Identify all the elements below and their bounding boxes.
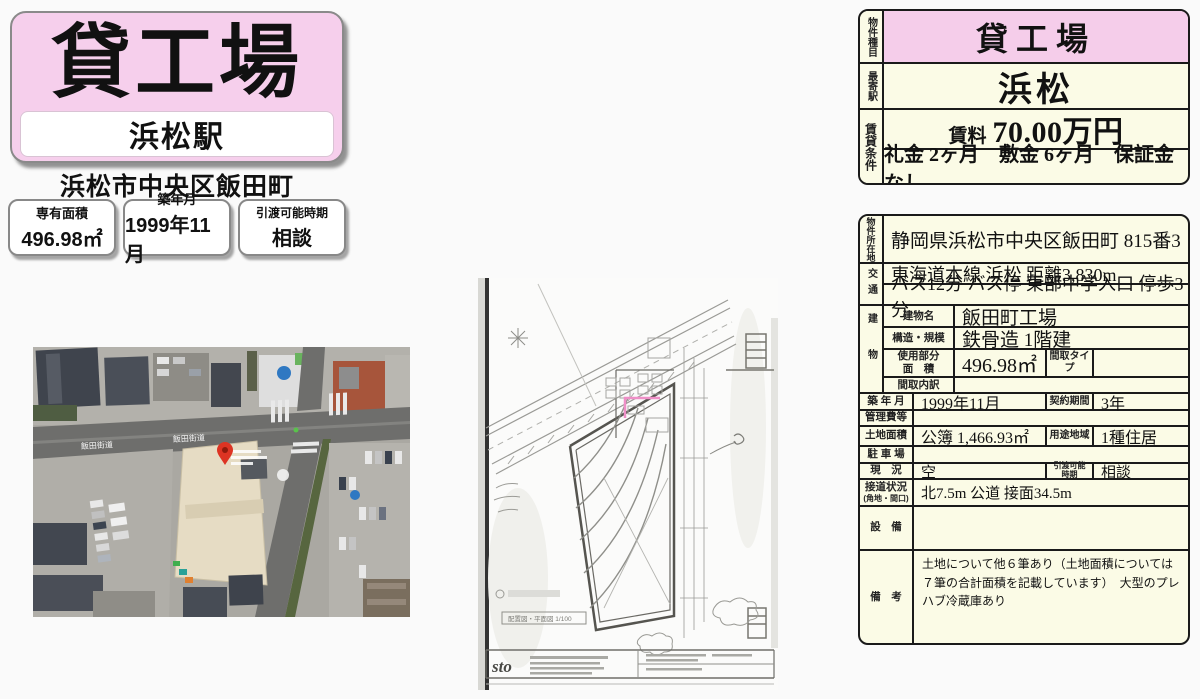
summary-table: 物件種目 貸工場 最寄駅 浜松 賃貸条件 賃料 70.00万円 — [858, 9, 1190, 185]
location-label: 物件所在地 — [860, 216, 884, 262]
badge-built-date: 築年月 1999年11月 — [123, 199, 231, 256]
parking-value — [914, 447, 1188, 462]
building-name-value: 飯田町工場 — [955, 306, 1188, 326]
station-banner: 浜松駅 — [20, 111, 334, 157]
zoning-label: 用途地域 — [1047, 427, 1094, 445]
aerial-photo: 飯田街道 飯田街道 — [33, 347, 410, 617]
badge-handover: 引渡可能時期 相談 — [238, 199, 346, 256]
status-value: 空 — [914, 464, 1047, 478]
structure-value: 鉄骨造 1階建 — [955, 328, 1188, 348]
contract-label: 契約期間 — [1047, 394, 1094, 409]
deposit-terms: 礼金 2ヶ月 敷金 6ヶ月 保証金 なし — [884, 150, 1188, 183]
badge-value: 496.98㎡ — [21, 223, 102, 252]
summary-type-value: 貸工場 — [884, 11, 1188, 62]
property-type-banner: 貸工場 浜松駅 — [10, 11, 344, 163]
badge-value: 相談 — [272, 222, 312, 251]
site-plan-svg: 配置図・平面図 1/100 sto — [478, 278, 778, 690]
contract-value: 3年 — [1094, 394, 1188, 409]
building-name-label: 建物名 — [884, 306, 955, 326]
plan-caption: 配置図・平面図 1/100 — [508, 615, 572, 623]
access-label: 交通 — [860, 264, 884, 304]
handover-label: 引渡可能 時期 — [1047, 464, 1094, 478]
aerial-photo-svg: 飯田街道 飯田街道 — [33, 347, 410, 617]
road-label-east: 飯田街道 — [173, 432, 205, 444]
flyer-page: 貸工場 浜松駅 浜松市中央区飯田町 専有面積 496.98㎡ 築年月 1999年… — [0, 0, 1200, 699]
road-label-west: 飯田街道 — [81, 439, 113, 451]
badge-label: 築年月 — [157, 189, 196, 208]
badge-exclusive-area: 専有面積 496.98㎡ — [8, 199, 116, 256]
built-value: 1999年11月 — [914, 394, 1047, 409]
building-label: 建物 — [860, 306, 884, 392]
site-plan-scan: 配置図・平面図 1/100 sto — [478, 278, 778, 690]
land-value: 公簿 1,466.93㎡ — [914, 427, 1047, 445]
badge-label: 専有面積 — [36, 203, 88, 222]
remarks-label: 備 考 — [860, 551, 914, 645]
location-value: 静岡県浜松市中央区飯田町 815番3 — [884, 216, 1188, 262]
parking-label: 駐 車 場 — [860, 447, 914, 462]
madori-type-value — [1094, 350, 1188, 376]
equipment-label: 設 備 — [860, 507, 914, 549]
equipment-value — [914, 507, 1188, 549]
north-arrow-icon — [508, 328, 528, 348]
handover-value: 相談 — [1094, 464, 1188, 478]
architect-logo: sto — [491, 657, 512, 676]
badge-value: 1999年11月 — [125, 209, 229, 267]
built-label: 築 年 月 — [860, 394, 914, 409]
madori-type-label: 間取タイプ — [1047, 350, 1094, 376]
property-type-title: 貸工場 — [12, 19, 342, 107]
summary-station-value: 浜松 — [884, 64, 1188, 108]
remarks-value: 土地について他６筆あり（土地面積については７筆の合計面積を記載しています） 大型… — [914, 551, 1188, 645]
detail-table: 物件所在地 静岡県浜松市中央区飯田町 815番3 交通 東海道本線 浜松 距離3… — [858, 214, 1190, 645]
used-area-label: 使用部分 面 積 — [884, 350, 955, 376]
frontage-label: 接道状況 (角地・間口) — [860, 480, 914, 505]
zoning-value: 1種住居 — [1094, 427, 1188, 445]
land-label: 土地面積 — [860, 427, 914, 445]
summary-type-label: 物件種目 — [860, 11, 884, 62]
summary-terms-label: 賃貸条件 — [860, 110, 884, 183]
station-name: 浜松駅 — [129, 112, 225, 156]
badge-label: 引渡可能時期 — [256, 204, 328, 221]
frontage-value: 北7.5m 公道 接面34.5m — [914, 480, 1188, 505]
structure-label: 構造・規模 — [884, 328, 955, 348]
used-area-value: 496.98㎡ — [955, 350, 1047, 376]
status-label: 現 況 — [860, 464, 914, 478]
summary-station-label: 最寄駅 — [860, 64, 884, 108]
mgmt-value — [914, 411, 1188, 425]
mgmt-label: 管理費等 — [860, 411, 914, 425]
